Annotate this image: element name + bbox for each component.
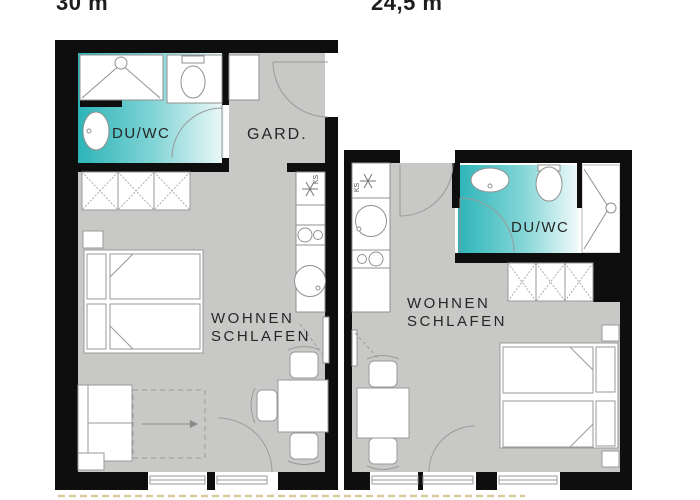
radiator — [323, 317, 329, 363]
apartment-left-title: 30 m — [56, 0, 108, 16]
nightstand — [83, 231, 103, 248]
wardrobe-room-label: GARD. — [247, 126, 308, 144]
radiator — [352, 330, 357, 366]
plan-canvas — [0, 0, 700, 500]
chair — [290, 433, 318, 459]
kitchen-sink-icon — [295, 266, 326, 297]
pillow — [596, 347, 615, 392]
shower-head-icon — [606, 203, 616, 213]
living-right-label-line1: WOHNEN — [407, 295, 490, 312]
bathroom-left-label: DU/WC — [112, 125, 170, 142]
apartment-right-title: 24,5 m — [371, 0, 443, 16]
pillow — [87, 254, 106, 299]
toilet-icon — [536, 167, 562, 201]
bathroom-right-label: DU/WC — [511, 219, 569, 236]
nightstand — [602, 451, 619, 467]
nightstand — [602, 325, 619, 341]
chair — [257, 390, 277, 421]
floor-plan: 30 m 24,5 m DU/WC GARD. WOHNEN SCHLAFEN … — [0, 0, 700, 500]
shower-head-icon — [115, 57, 127, 69]
living-right-label-line2: SCHLAFEN — [407, 313, 507, 330]
living-left-label-line1: WOHNEN — [211, 310, 294, 327]
pillow — [596, 401, 615, 446]
chair — [290, 352, 318, 378]
pillow — [87, 304, 106, 349]
living-left-label-line2: SCHLAFEN — [211, 328, 311, 345]
table — [278, 380, 328, 432]
fridge-left-label: KS — [313, 175, 320, 184]
windows-right — [372, 476, 557, 484]
kitchen-sink-icon — [356, 206, 387, 237]
cabinet — [78, 453, 104, 470]
wardrobe-left — [82, 172, 190, 210]
shaft — [229, 55, 259, 100]
double-bed-right — [500, 343, 618, 448]
table — [357, 388, 409, 438]
double-bed-left — [84, 250, 203, 353]
fridge-right-label: KS — [354, 183, 361, 192]
chair — [369, 361, 397, 387]
wardrobe-right — [508, 263, 593, 301]
chair — [369, 438, 397, 464]
toilet-icon — [181, 66, 205, 98]
